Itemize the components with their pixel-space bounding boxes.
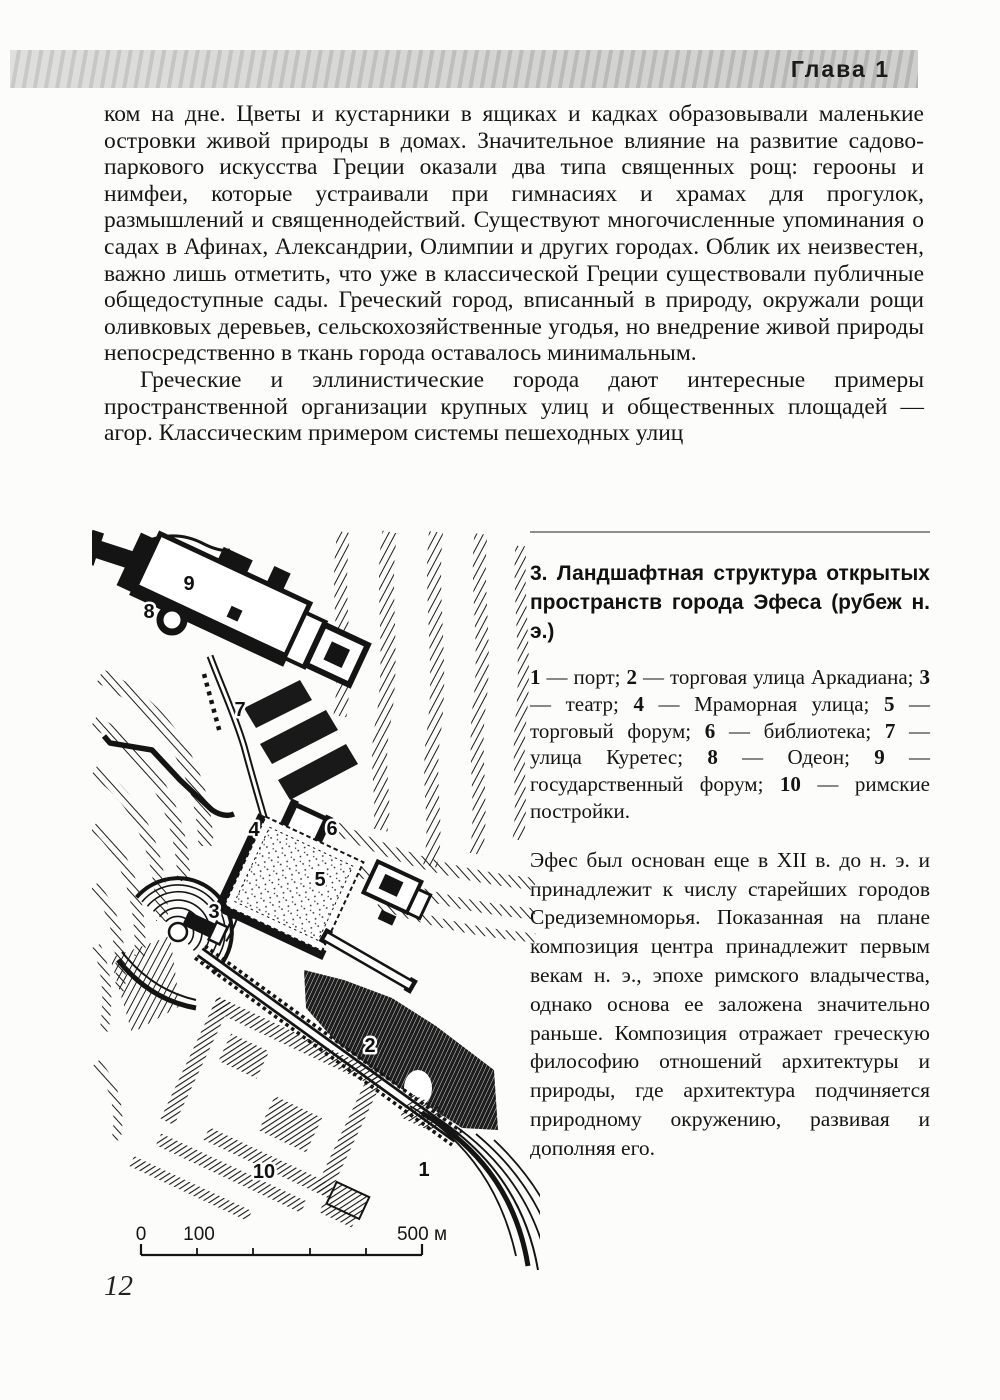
legend-num: 2: [627, 665, 638, 689]
figure-map-ephesus-plan: 1 2 3 4 5 6 7 8 9 10 0 100: [92, 528, 540, 1270]
caption-divider-rule: [530, 531, 930, 533]
legend-num: 8: [707, 745, 718, 769]
legend-num: 10: [780, 772, 801, 796]
map-drawing: 1 2 3 4 5 6 7 8 9 10 0 100: [92, 528, 540, 1270]
map-label-7: 7: [234, 699, 245, 721]
map-label-1: 1: [418, 1159, 429, 1181]
legend-num: 6: [705, 719, 716, 743]
legend-num: 1: [530, 665, 541, 689]
map-label-4: 4: [248, 819, 260, 841]
map-label-2: 2: [364, 1035, 375, 1057]
legend-num: 7: [885, 719, 896, 743]
curetes-street: [204, 656, 266, 824]
chapter-header-band: Глава 1: [10, 50, 918, 88]
odeon-building: [160, 608, 184, 632]
legend-label: — торговая улица Аркадиана;: [643, 665, 913, 689]
page-number: 12: [104, 1270, 133, 1303]
legend-label: — Мраморная улица;: [659, 692, 870, 716]
body-paragraph-2: Греческие и эллинистические города дают …: [104, 367, 924, 447]
scale-label-zero: 0: [136, 1224, 147, 1245]
legend-num: 3: [920, 665, 931, 689]
map-label-8: 8: [143, 601, 154, 623]
body-paragraph-1: ком на дне. Цветы и кустарники в ящиках …: [104, 101, 924, 367]
map-label-9: 9: [183, 573, 194, 595]
map-label-3: 3: [208, 901, 219, 923]
legend-num: 9: [874, 745, 885, 769]
legend-label: — театр;: [530, 692, 619, 716]
legend-label: — библиотека;: [729, 719, 871, 743]
legend-num: 5: [884, 692, 895, 716]
scale-label-end: 500 м: [397, 1224, 447, 1245]
book-page: Глава 1 ком на дне. Цветы и кустарники в…: [0, 0, 1000, 1400]
map-label-5: 5: [314, 869, 325, 891]
legend-label: — порт;: [547, 665, 621, 689]
figure-legend: 1 — порт; 2 — торговая улица Аркадиана; …: [530, 664, 930, 825]
figure-caption-title: 3. Ландшафтная структура открытых простр…: [530, 559, 930, 646]
scale-label-hundred: 100: [183, 1224, 215, 1245]
map-label-6: 6: [326, 818, 337, 840]
scale-bar: 0 100 500 м: [136, 1224, 447, 1255]
map-label-10: 10: [253, 1161, 275, 1183]
figure-caption-column: 3. Ландшафтная структура открытых простр…: [530, 531, 930, 1184]
body-text-block: ком на дне. Цветы и кустарники в ящиках …: [104, 101, 924, 447]
chapter-label: Глава 1: [791, 56, 918, 83]
contour-hatching-right: [340, 532, 523, 866]
legend-label: — Одеон;: [742, 745, 850, 769]
figure-caption-body: Эфес был основан еще в XII в. до н. э. и…: [530, 846, 930, 1163]
legend-num: 4: [633, 692, 644, 716]
